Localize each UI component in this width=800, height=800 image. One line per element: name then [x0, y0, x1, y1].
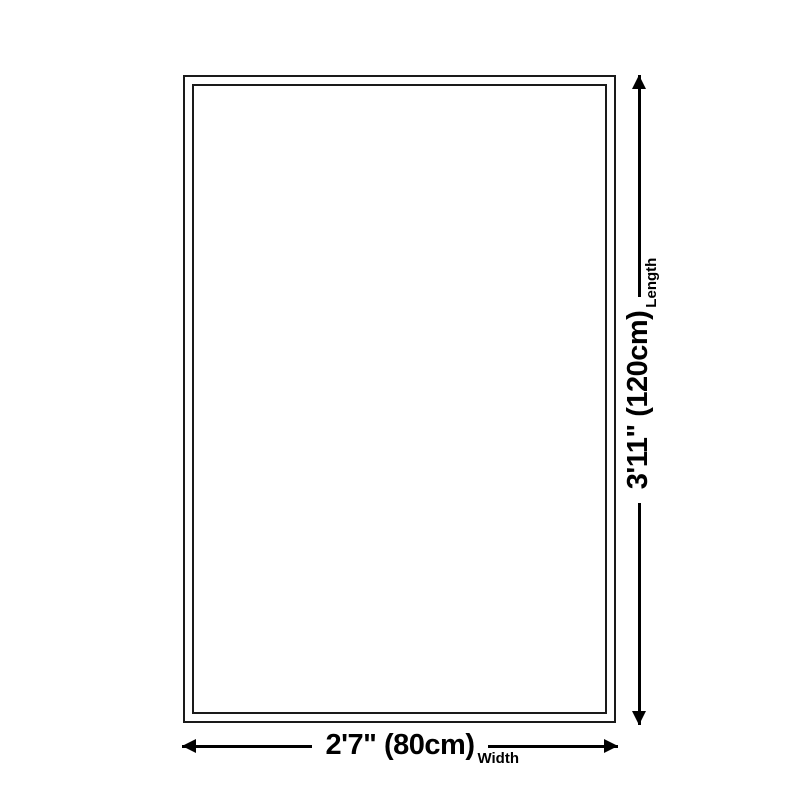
length-value: 3'11" (120cm) [622, 311, 654, 490]
product-outline-inner-border [192, 84, 607, 714]
width-dimension: 2'7" (80cm) Width [182, 725, 618, 767]
product-dimension-diagram: 3'11" (120cm) Length 2'7" (80cm) Width [0, 0, 800, 800]
length-dimension-line-upper [638, 75, 641, 297]
arrow-left-icon [182, 739, 196, 753]
arrow-up-icon [632, 75, 646, 89]
length-dimension-line-lower [638, 503, 641, 725]
length-dimension: 3'11" (120cm) Length [618, 75, 660, 725]
width-dimension-line-right [488, 745, 618, 748]
arrow-right-icon [604, 739, 618, 753]
width-label: Width [477, 751, 519, 766]
width-dimension-line-left [182, 745, 312, 748]
width-dimension-text: 2'7" (80cm) Width [326, 730, 475, 762]
product-outline [183, 75, 616, 723]
length-label: Length [644, 258, 659, 308]
width-value: 2'7" (80cm) [326, 729, 475, 761]
length-dimension-text: 3'11" (120cm) Length [623, 311, 655, 490]
arrow-down-icon [632, 711, 646, 725]
